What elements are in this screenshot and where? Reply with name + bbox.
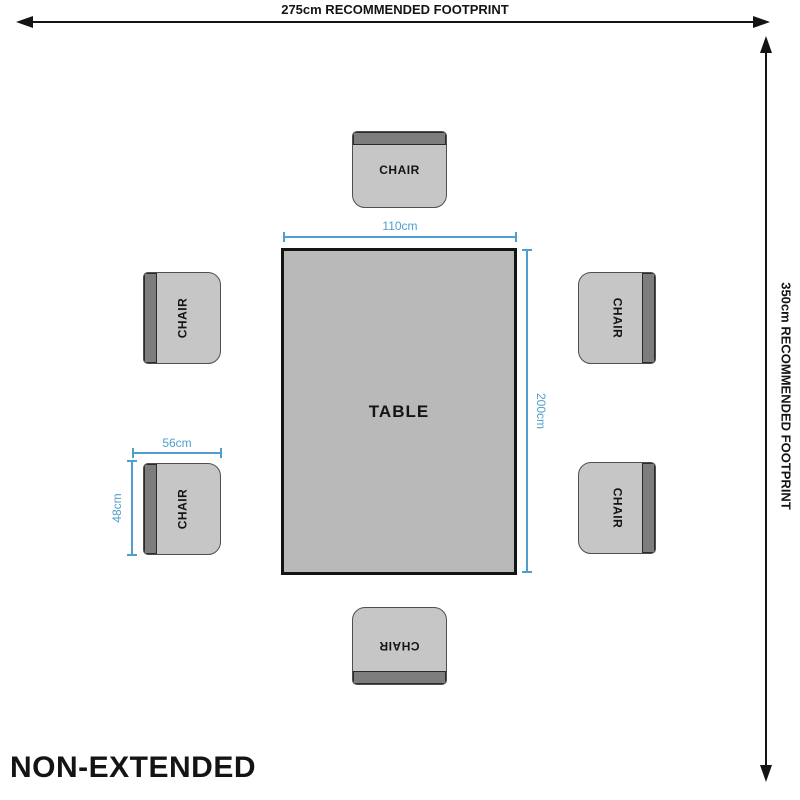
chair-bottom: CHAIR	[352, 607, 447, 685]
table-depth-label: 200cm	[534, 393, 548, 429]
chair-depth-label: 48cm	[110, 493, 124, 522]
chair-backrest	[642, 463, 655, 553]
arrowhead-right-icon	[753, 16, 770, 28]
horizontal-footprint-arrow	[16, 16, 770, 28]
chair-backrest	[353, 132, 446, 145]
chair-top: CHAIR	[352, 131, 447, 208]
chair-label: CHAIR	[175, 298, 189, 339]
table-width-label: 110cm	[283, 219, 517, 233]
table: TABLE	[281, 248, 517, 575]
chair-depth-dimension	[131, 460, 133, 556]
chair-label: CHAIR	[610, 298, 624, 339]
table-width-dimension	[283, 236, 517, 238]
chair-left-lower: CHAIR	[143, 463, 221, 555]
chair-backrest	[144, 273, 157, 363]
chair-backrest	[144, 464, 157, 554]
vertical-footprint-arrow	[760, 36, 772, 782]
chair-right-upper: CHAIR	[578, 272, 656, 364]
vertical-arrow-shaft	[765, 48, 767, 770]
chair-label: CHAIR	[379, 163, 420, 177]
chair-width-dimension	[132, 452, 222, 454]
chair-backrest	[642, 273, 655, 363]
table-label: TABLE	[369, 402, 429, 422]
chair-backrest	[353, 671, 446, 684]
chair-label: CHAIR	[610, 488, 624, 529]
diagram-caption: NON-EXTENDED	[10, 751, 256, 785]
chair-left-upper: CHAIR	[143, 272, 221, 364]
horizontal-footprint-label: 275cm RECOMMENDED FOOTPRINT	[0, 2, 790, 17]
horizontal-arrow-shaft	[28, 21, 758, 23]
chair-width-label: 56cm	[132, 436, 222, 450]
vertical-footprint-label: 350cm RECOMMENDED FOOTPRINT	[779, 282, 794, 510]
chair-right-lower: CHAIR	[578, 462, 656, 554]
table-depth-dimension	[526, 249, 528, 573]
floorplan-canvas: 275cm RECOMMENDED FOOTPRINT 350cm RECOMM…	[0, 0, 800, 800]
chair-label: CHAIR	[379, 639, 420, 653]
chair-label: CHAIR	[175, 489, 189, 530]
arrowhead-down-icon	[760, 765, 772, 782]
